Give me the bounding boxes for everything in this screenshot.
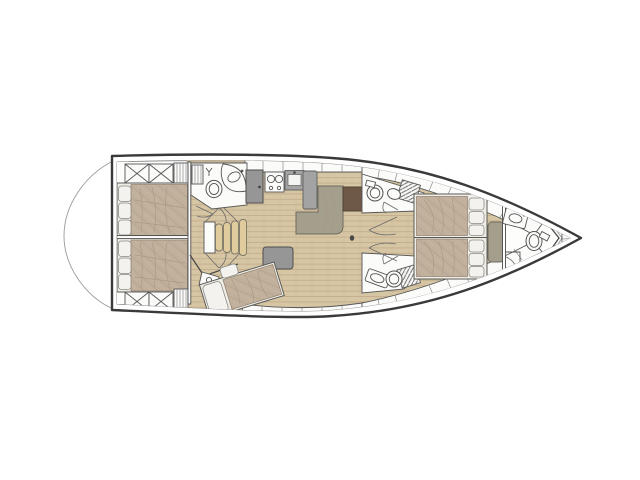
sink-icon [288,175,301,186]
toilet-icon [367,185,383,201]
aft-bulkhead-wall [188,162,191,304]
chart-table [343,187,363,211]
pillow [469,198,484,210]
boat-floor-plan [0,0,640,480]
master-cabin-bench [488,222,504,262]
island-berth-half [417,239,468,277]
stair-landing [204,222,215,253]
bow-section-floor [504,160,596,320]
swim-platform-outline [64,161,113,308]
double-berth [131,240,188,291]
galley-counter [303,171,317,209]
pillow [119,275,132,290]
pillow [469,267,484,278]
pillow [469,225,484,236]
aft-cabin-starboard [117,163,189,237]
pillow [119,203,132,219]
pillow [469,240,484,252]
pillow [119,241,132,257]
locker-hatch-icon [125,163,188,183]
cabin-divider-wall [117,236,189,239]
pillow [469,254,484,266]
pillow [119,220,132,235]
pillow [119,186,132,202]
pillow [469,212,484,224]
toilet-icon [386,271,402,287]
boat-floorplan-canvas [0,0,640,480]
companionway-stairs [204,220,247,256]
double-berth [131,185,188,236]
aft-cabin-port [117,238,189,311]
pillow [119,258,132,274]
island-berth-half [417,197,468,236]
mast-step-icon [350,235,354,241]
